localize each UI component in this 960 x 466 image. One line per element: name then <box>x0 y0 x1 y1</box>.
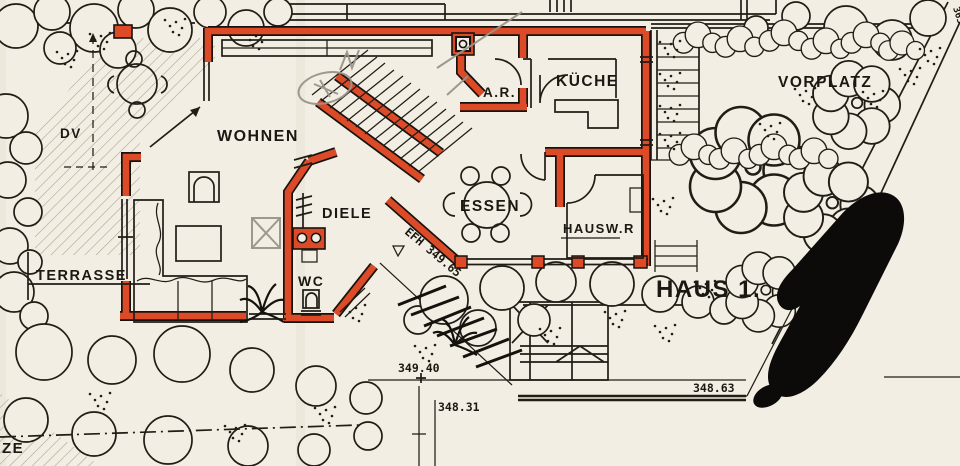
label-ze: ZE <box>2 440 24 457</box>
floor-plan-scan: WOHNEN TERRASSE DIELE WC A.R. KÜCHE ESSE… <box>0 0 960 466</box>
label-vorplatz: VORPLATZ <box>778 74 872 91</box>
label-hauswr: HAUSW.R <box>563 221 635 236</box>
gate-post <box>114 25 132 38</box>
label-wohnen: WOHNEN <box>217 128 299 145</box>
label-terrasse: TERRASSE <box>36 268 127 284</box>
label-essen: ESSEN <box>460 198 520 215</box>
label-dv: DV <box>60 126 82 141</box>
label-diele: DIELE <box>322 206 372 222</box>
label-kueche: KÜCHE <box>556 73 619 90</box>
label-ar: A.R. <box>483 85 516 100</box>
elev-348-63: 348.63 <box>693 381 735 395</box>
elev-349-40: 349.40 <box>398 361 440 375</box>
elev-348-31: 348.31 <box>438 400 480 414</box>
label-haus-1: HAUS 1. <box>656 276 761 303</box>
label-wc: WC <box>298 273 324 289</box>
